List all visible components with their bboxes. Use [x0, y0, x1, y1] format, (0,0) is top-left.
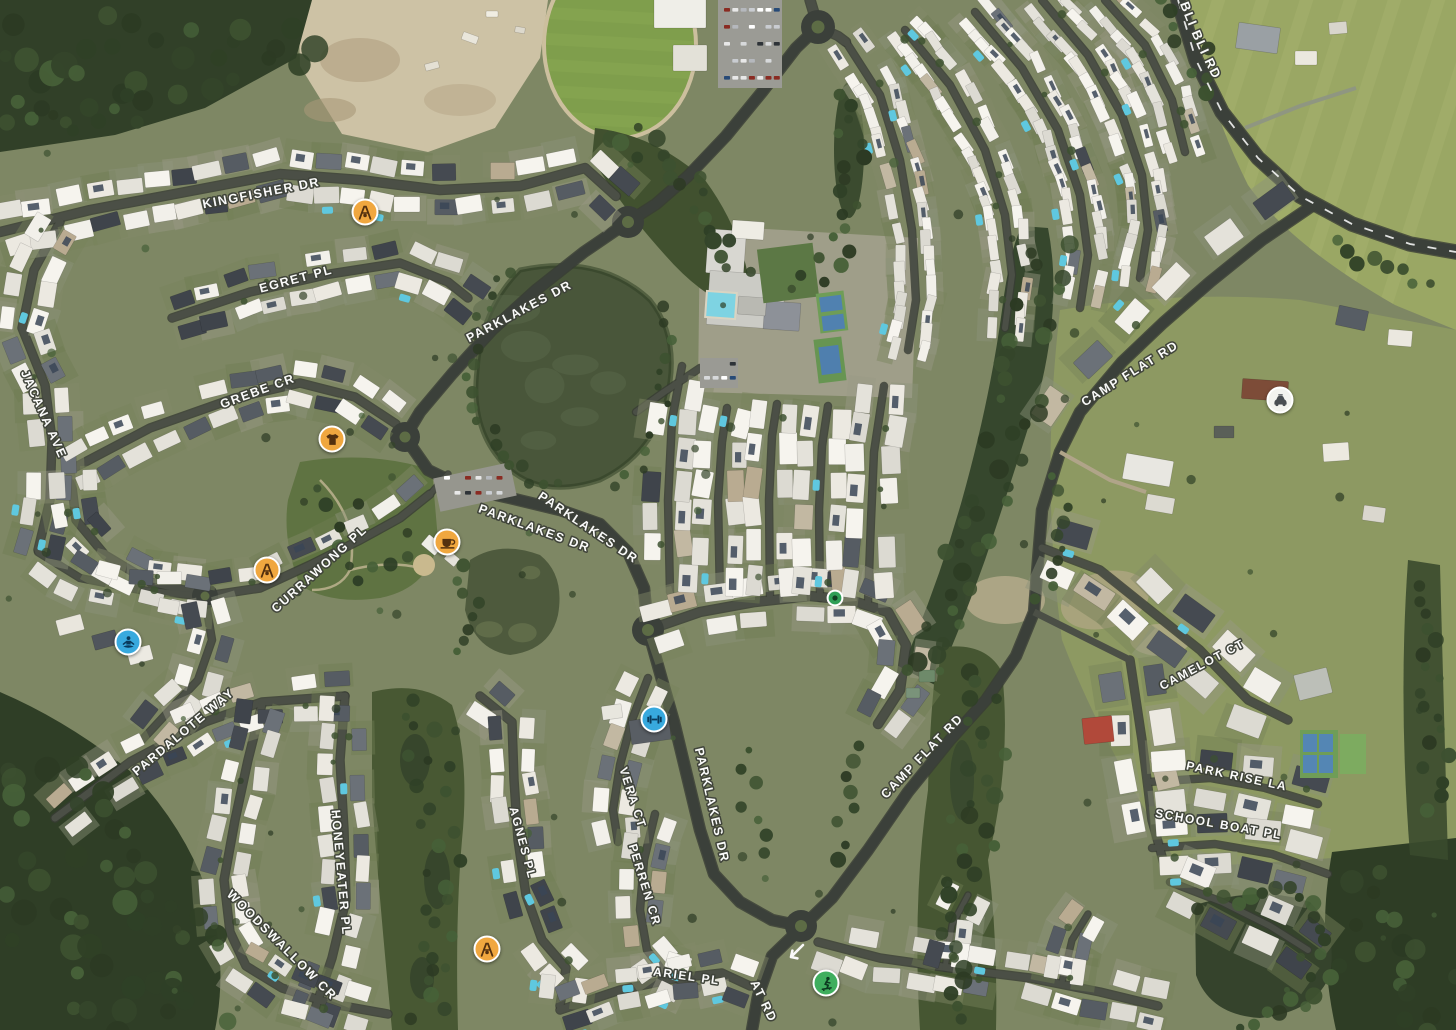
poi-playground-marker[interactable] [474, 936, 501, 963]
poi-playground-marker[interactable] [352, 199, 379, 226]
poi-fitness-marker[interactable] [641, 706, 668, 733]
poi-marker-layer [0, 0, 1456, 1030]
poi-transit-dot-marker[interactable] [826, 589, 844, 607]
poi-clothing-marker[interactable] [319, 426, 346, 453]
one-way-arrow-icon [783, 939, 809, 965]
poi-yoga-marker[interactable] [115, 629, 142, 656]
poi-skate-marker[interactable] [813, 970, 840, 997]
poi-cafe-marker[interactable] [434, 529, 461, 556]
poi-car-marker[interactable] [1267, 387, 1294, 414]
poi-playground-marker[interactable] [254, 557, 281, 584]
satellite-map[interactable]: KINGFISHER DREGRET PLPARKLAKES DRJACANA … [0, 0, 1456, 1030]
